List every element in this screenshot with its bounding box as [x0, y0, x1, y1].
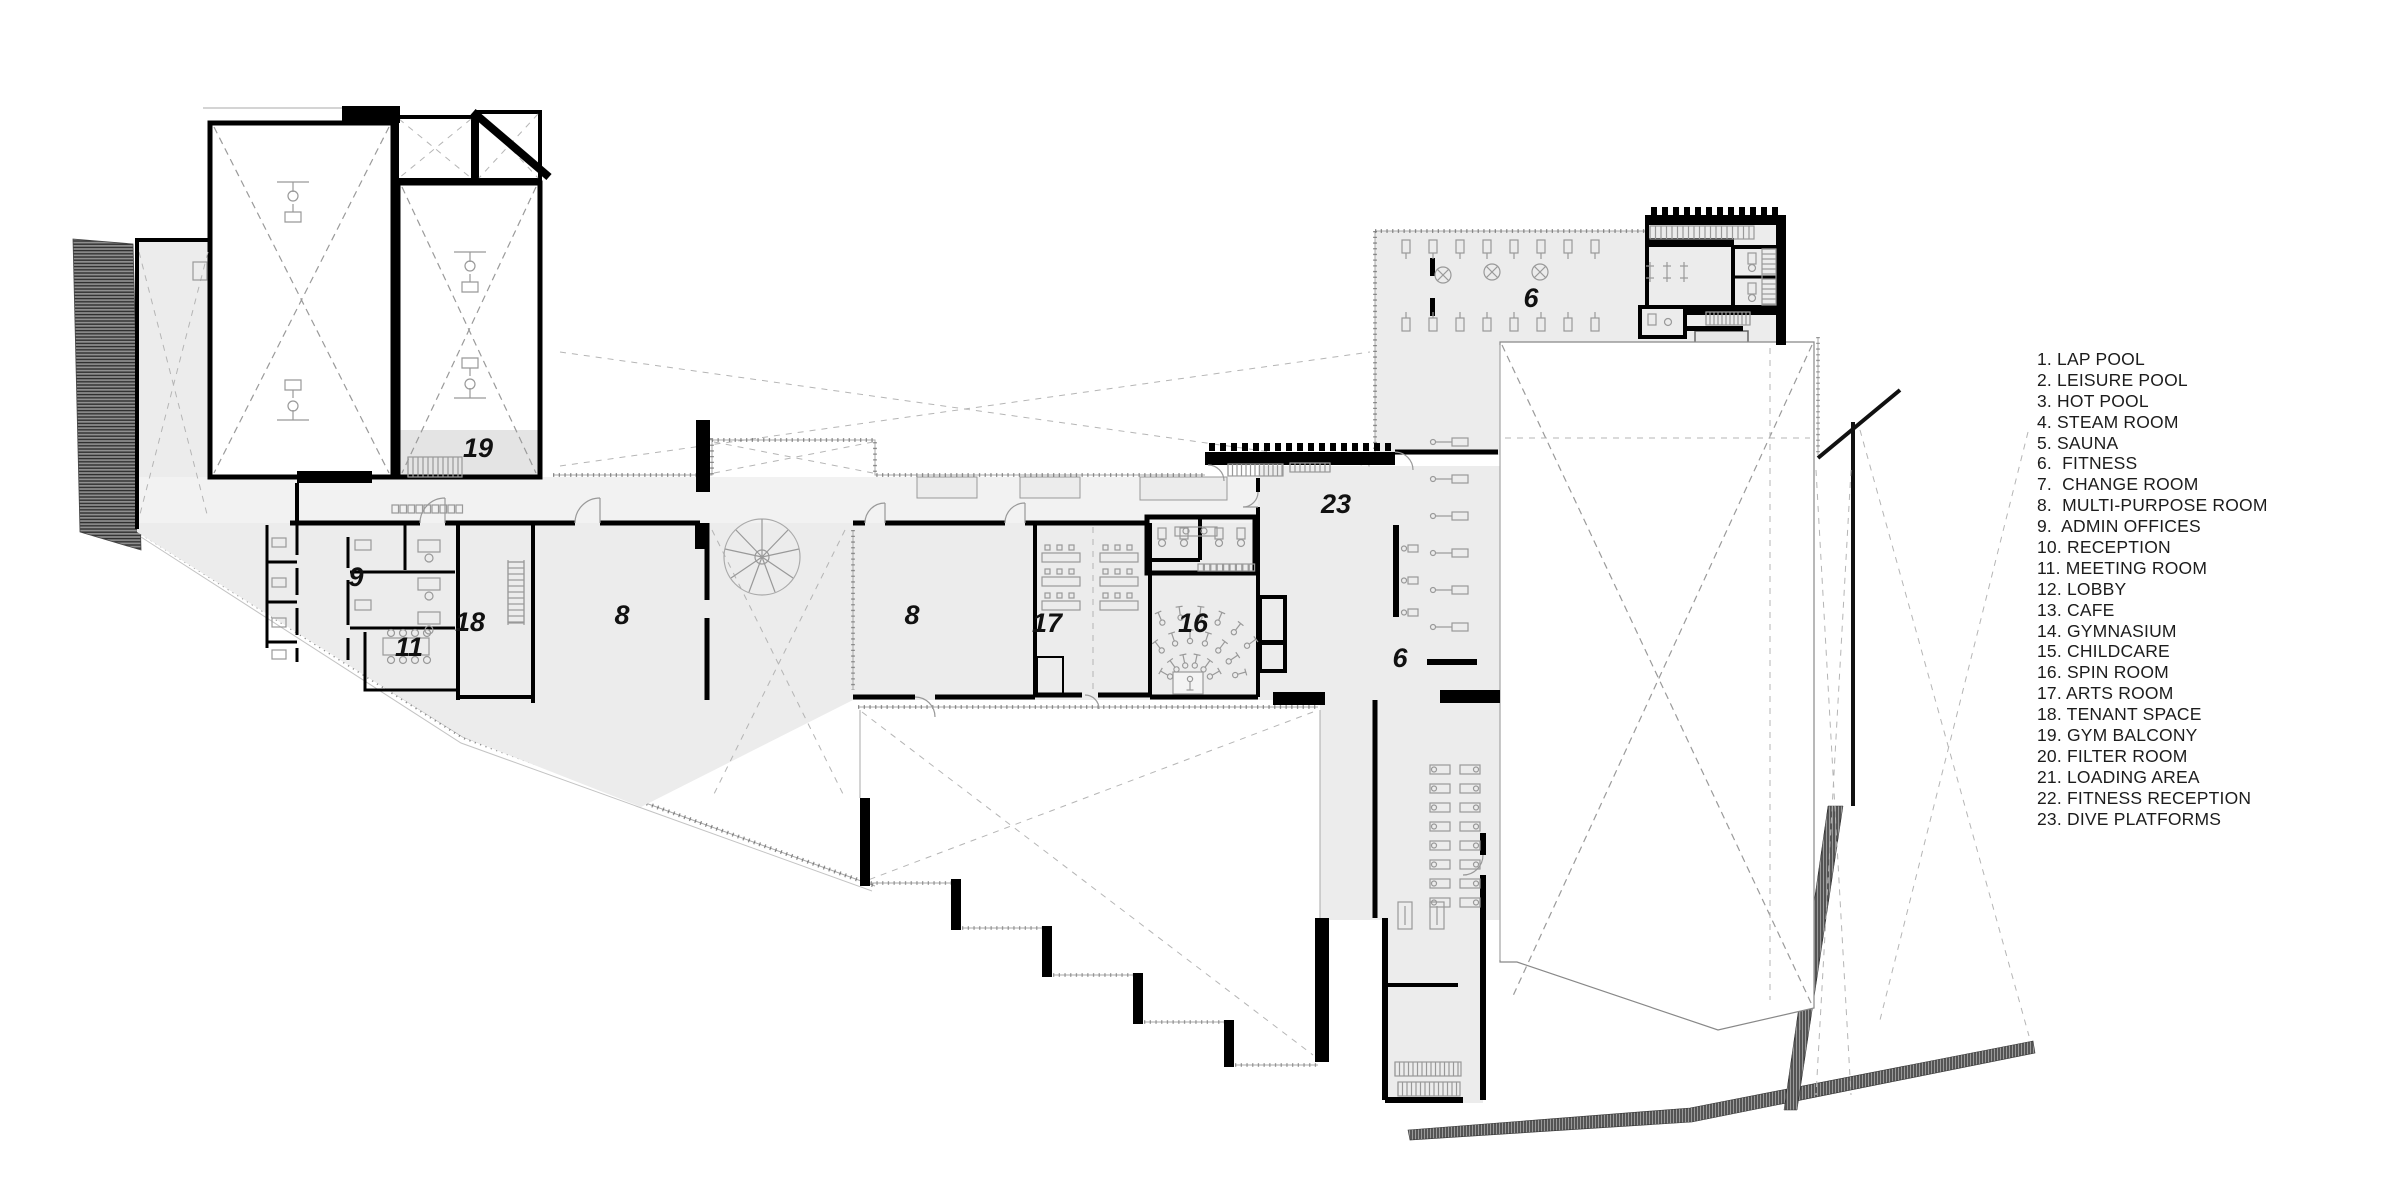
room-number-label: 18	[455, 607, 485, 637]
legend-item: 17. ARTS ROOM	[2037, 683, 2268, 704]
legend-item: 4. STEAM ROOM	[2037, 412, 2268, 433]
legend-item: 10. RECEPTION	[2037, 537, 2268, 558]
legend-item: 1. LAP POOL	[2037, 349, 2268, 370]
room-number-label: 8	[614, 600, 629, 630]
legend-item: 9. ADMIN OFFICES	[2037, 516, 2268, 537]
legend-item: 15. CHILDCARE	[2037, 641, 2268, 662]
legend-item: 23. DIVE PLATFORMS	[2037, 809, 2268, 830]
legend-item: 18. TENANT SPACE	[2037, 704, 2268, 725]
legend-item: 8. MULTI-PURPOSE ROOM	[2037, 495, 2268, 516]
legend-item: 3. HOT POOL	[2037, 391, 2268, 412]
room-number-label: 11	[395, 632, 423, 662]
site-hatch-south	[1408, 1041, 2035, 1140]
room-number-label: 19	[463, 433, 493, 463]
legend-item: 2. LEISURE POOL	[2037, 370, 2268, 391]
legend-item: 7. CHANGE ROOM	[2037, 474, 2268, 495]
room-number-label: 23	[1320, 489, 1351, 519]
room-number-label: 6	[1523, 283, 1539, 313]
legend-item: 21. LOADING AREA	[2037, 767, 2268, 788]
legend-item: 13. CAFE	[2037, 600, 2268, 621]
pool-void	[1500, 342, 1814, 1030]
room-number-label: 9	[348, 562, 363, 592]
legend: 1. LAP POOL2. LEISURE POOL3. HOT POOL4. …	[2037, 349, 2268, 829]
legend-item: 6. FITNESS	[2037, 453, 2268, 474]
site-hatch-west	[73, 239, 141, 550]
legend-item: 16. SPIN ROOM	[2037, 662, 2268, 683]
room-number-label: 8	[904, 600, 919, 630]
legend-item: 12. LOBBY	[2037, 579, 2268, 600]
room-number-label: 17	[1032, 608, 1064, 638]
floor-plan-page: 19911188817162366 1. LAP POOL2. LEISURE …	[0, 0, 2400, 1187]
room-number-label: 16	[1178, 608, 1209, 638]
legend-item: 14. GYMNASIUM	[2037, 621, 2268, 642]
basketball-hoop-icon	[277, 182, 486, 420]
legend-item: 5. SAUNA	[2037, 433, 2268, 454]
legend-item: 22. FITNESS RECEPTION	[2037, 788, 2268, 809]
room-number-label: 6	[1392, 643, 1408, 673]
legend-item: 19. GYM BALCONY	[2037, 725, 2268, 746]
legend-item: 20. FILTER ROOM	[2037, 746, 2268, 767]
legend-item: 11. MEETING ROOM	[2037, 558, 2268, 579]
